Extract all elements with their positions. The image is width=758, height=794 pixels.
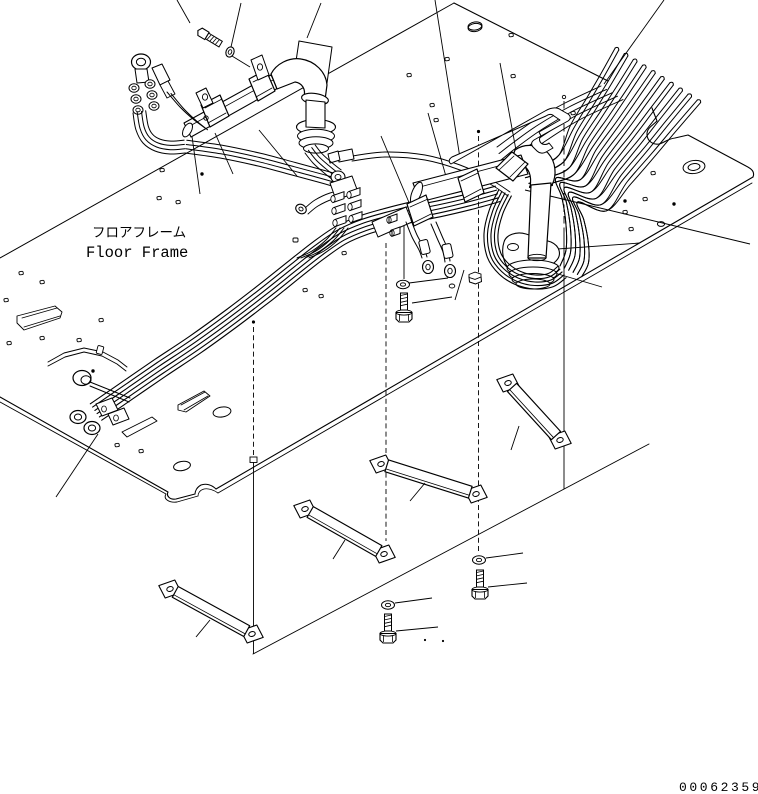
svg-text:Floor Frame: Floor Frame [86,244,188,262]
svg-text:フロアフレーム: フロアフレーム [92,225,186,240]
svg-text:00062359: 00062359 [679,780,758,794]
